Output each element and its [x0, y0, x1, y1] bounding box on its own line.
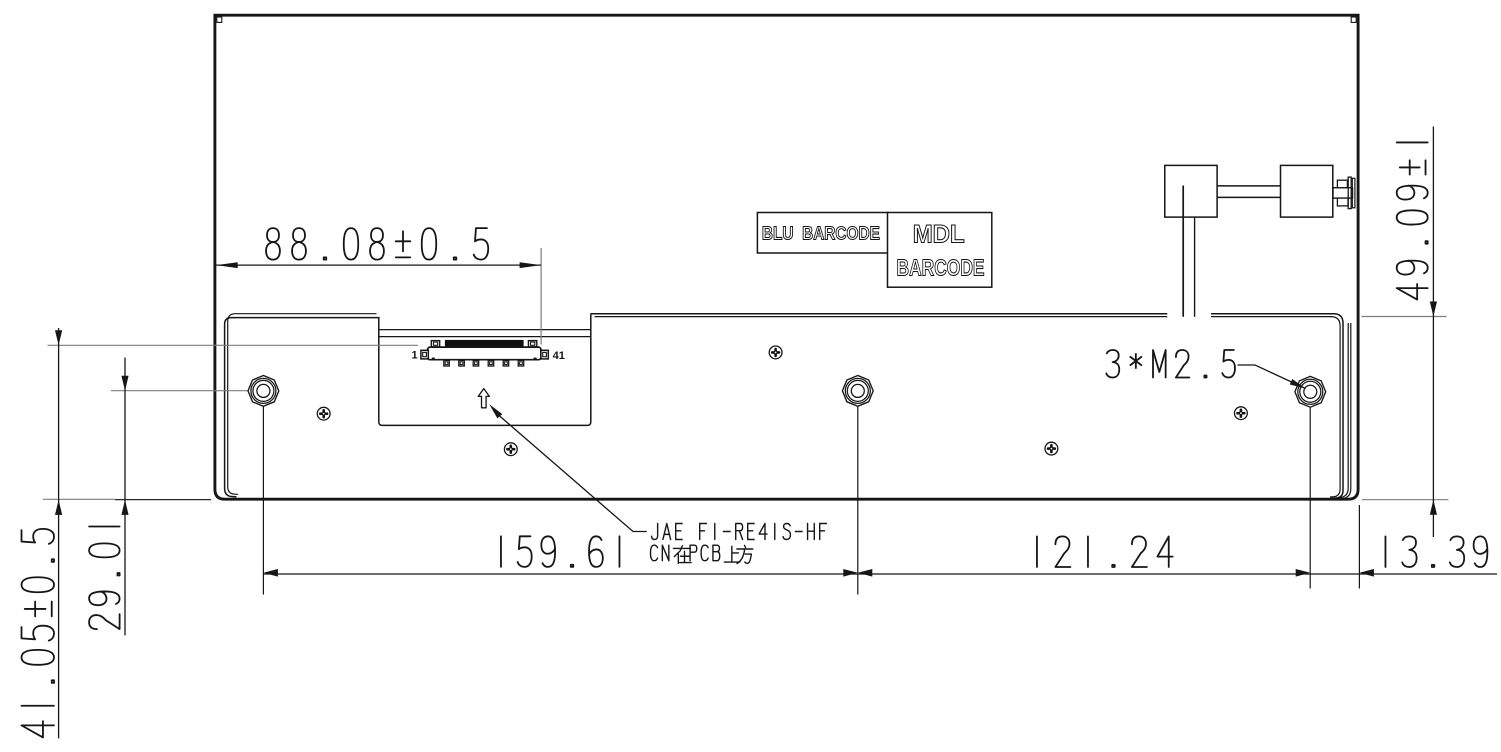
svg-text:1: 1 — [412, 350, 418, 362]
svg-text:MDL: MDL — [913, 221, 965, 249]
svg-text:BARCODE: BARCODE — [897, 255, 985, 281]
svg-text:BLU BARCODE: BLU BARCODE — [762, 224, 880, 244]
svg-text:41: 41 — [553, 350, 565, 362]
